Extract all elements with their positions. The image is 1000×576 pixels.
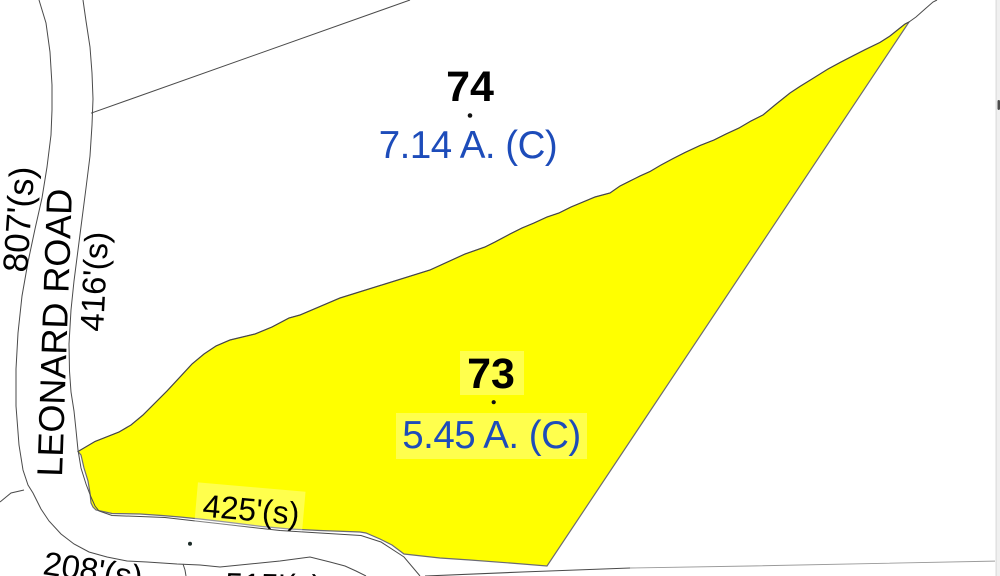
svg-text:515'(s): 515'(s) <box>225 566 323 576</box>
svg-text:73: 73 <box>467 350 515 398</box>
svg-text:416'(s): 416'(s) <box>73 231 115 333</box>
svg-text:74: 74 <box>446 63 494 111</box>
svg-text:807'(s): 807'(s) <box>0 165 42 273</box>
svg-text:5.45 A. (C): 5.45 A. (C) <box>402 414 581 457</box>
svg-text:7.14 A. (C): 7.14 A. (C) <box>379 124 558 167</box>
